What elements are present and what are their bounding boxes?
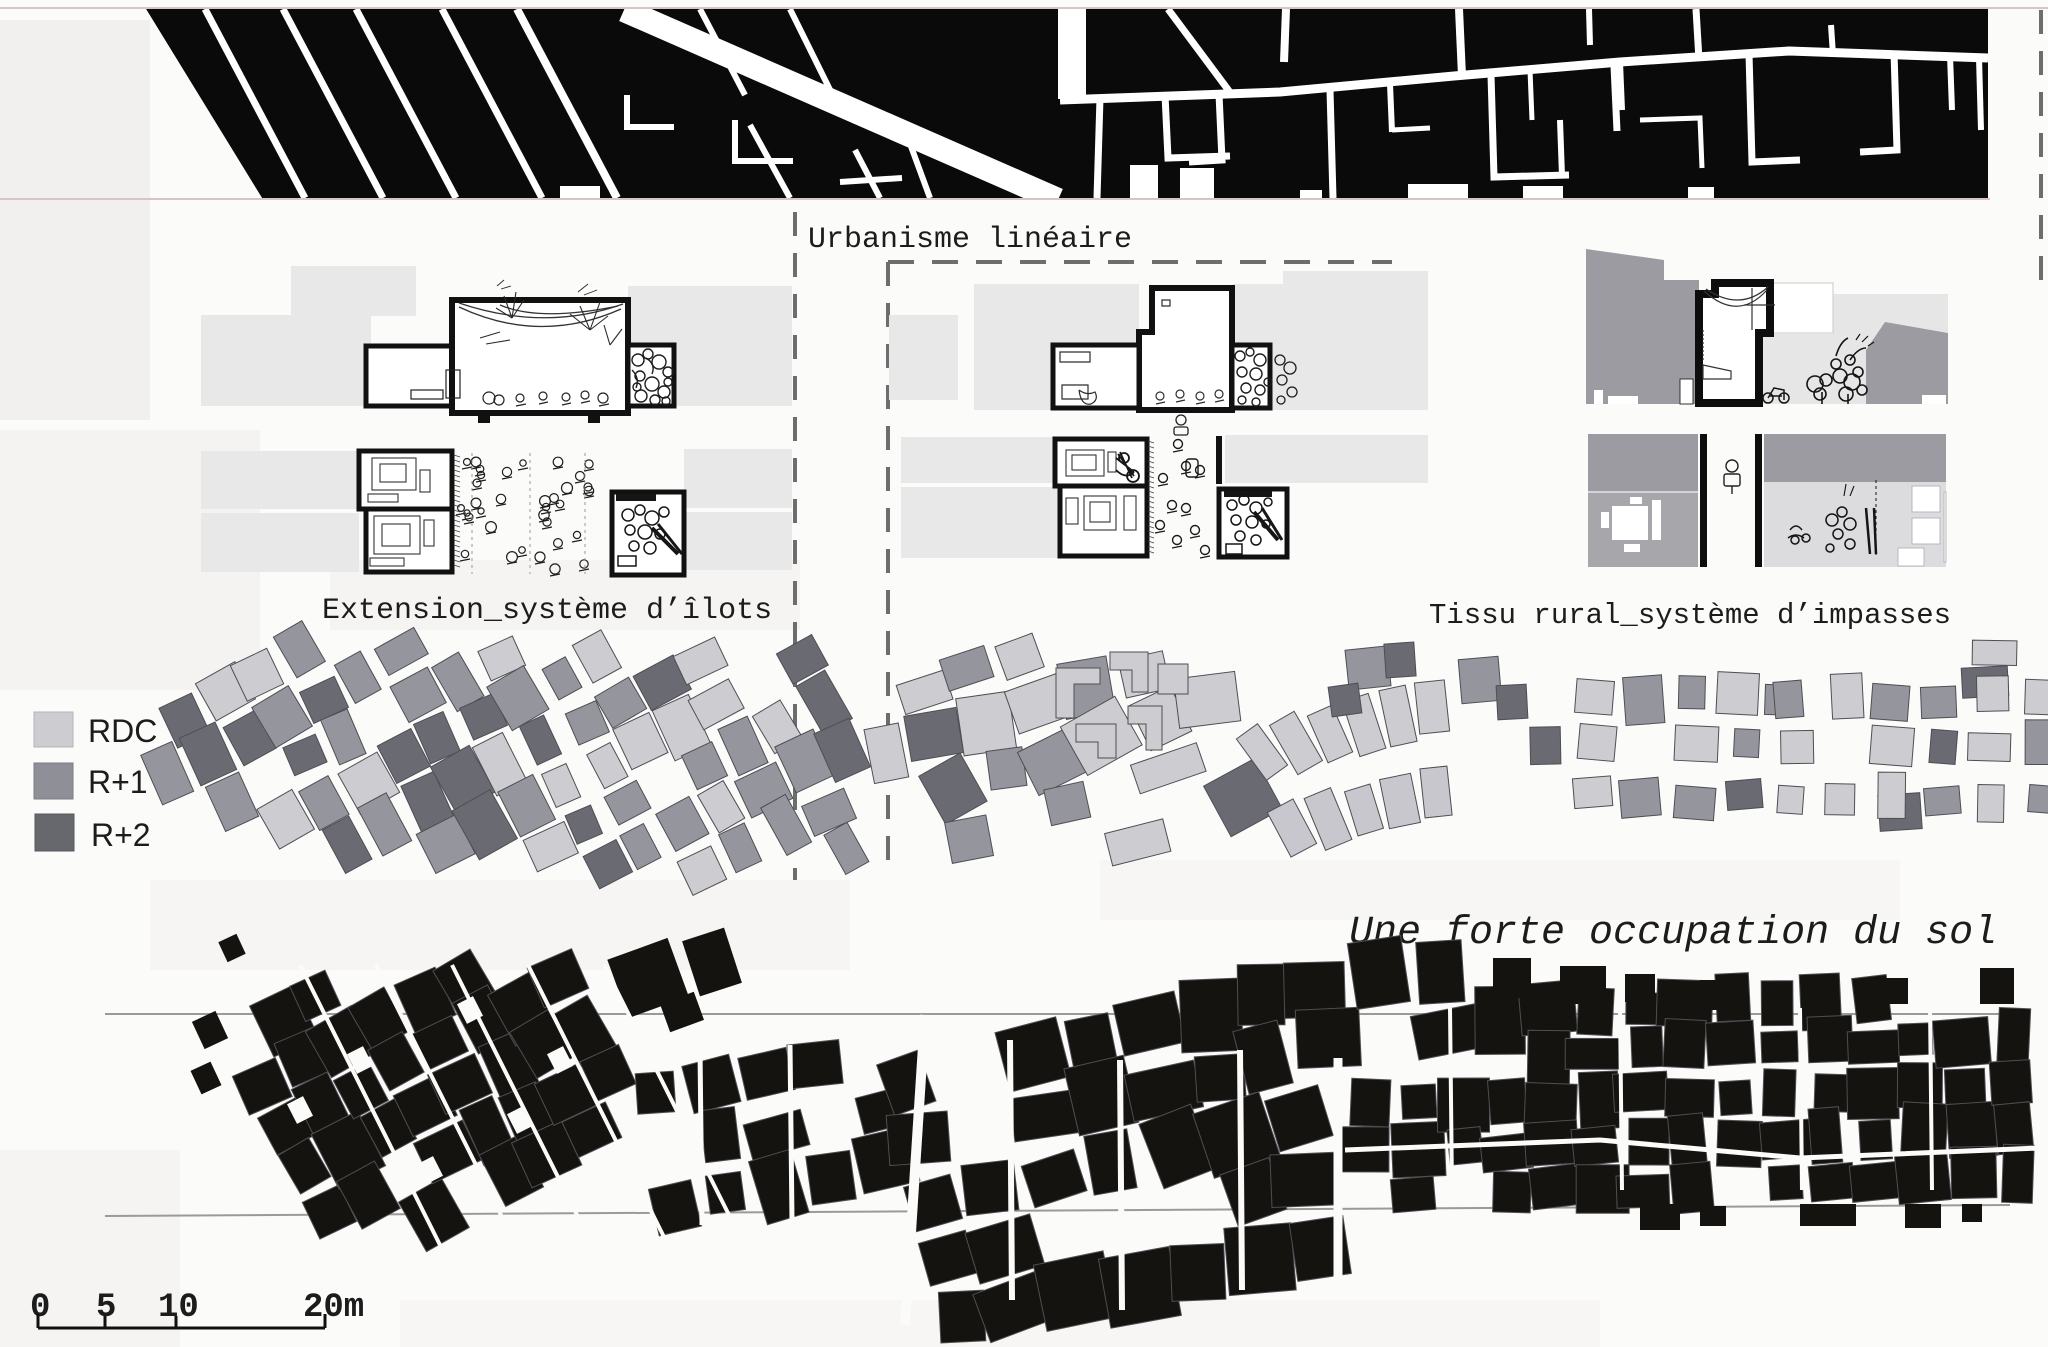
svg-text:R+2: R+2 [91, 817, 151, 853]
svg-text:20m: 20m [303, 1289, 364, 1327]
svg-text:10: 10 [158, 1289, 199, 1327]
svg-text:Extension_système d’îlots: Extension_système d’îlots [322, 594, 772, 628]
svg-text:R+1: R+1 [88, 764, 148, 800]
svg-text:RDC: RDC [88, 713, 157, 749]
svg-text:Tissu rural_système d’impasses: Tissu rural_système d’impasses [1429, 599, 1951, 632]
svg-text:Urbanisme linéaire: Urbanisme linéaire [808, 223, 1132, 257]
svg-text:0: 0 [30, 1289, 50, 1327]
